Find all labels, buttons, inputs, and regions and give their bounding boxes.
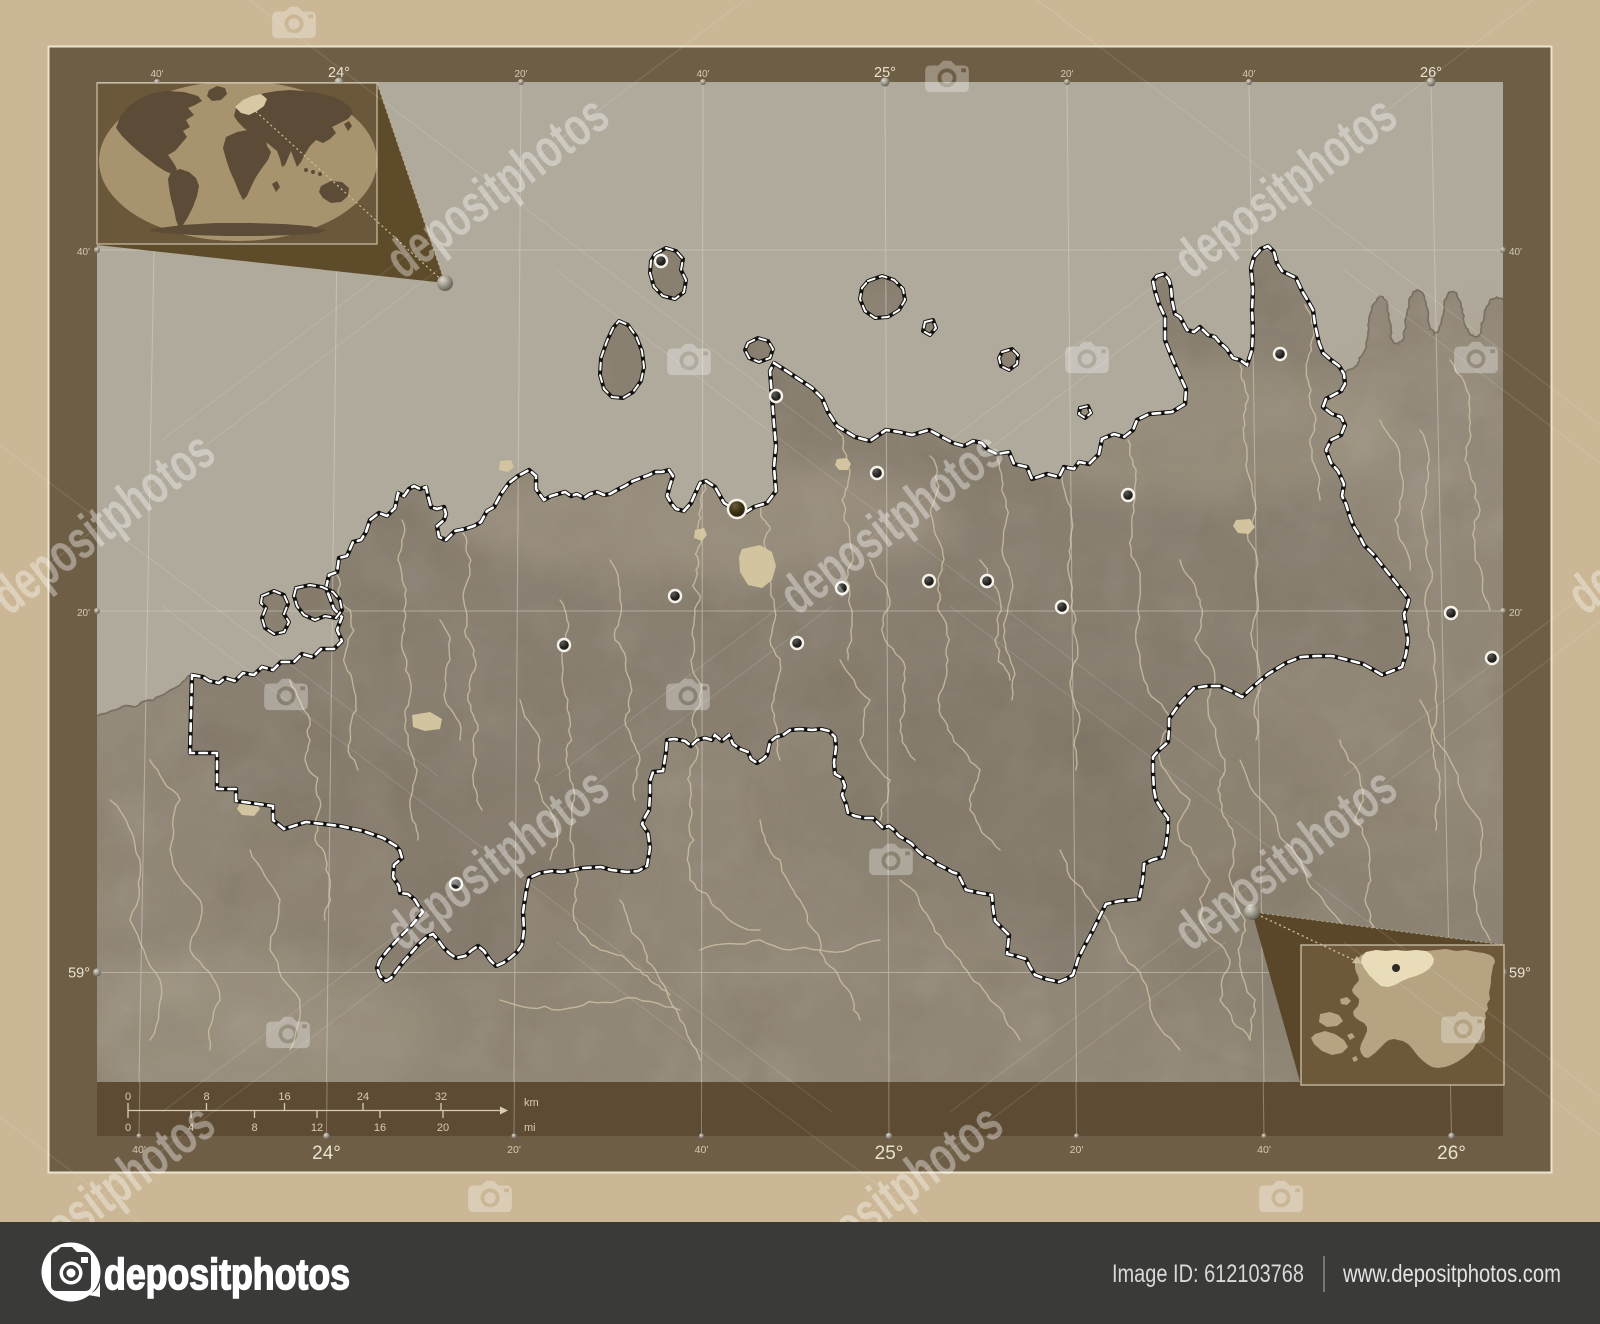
svg-text:Image ID: 612103768: Image ID: 612103768 — [1112, 1260, 1304, 1288]
svg-text:24°: 24° — [312, 1143, 341, 1164]
svg-text:20': 20' — [1509, 608, 1522, 619]
svg-text:12: 12 — [311, 1122, 323, 1134]
svg-text:20': 20' — [77, 608, 90, 619]
svg-text:16: 16 — [278, 1091, 290, 1103]
svg-text:26°: 26° — [1420, 65, 1442, 81]
svg-text:32: 32 — [435, 1091, 447, 1103]
svg-text:24: 24 — [357, 1091, 369, 1103]
svg-text:40': 40' — [695, 1144, 709, 1156]
svg-text:40': 40' — [1242, 69, 1255, 80]
svg-text:20': 20' — [1070, 1144, 1084, 1156]
svg-text:20': 20' — [1060, 69, 1073, 80]
svg-text:8: 8 — [251, 1122, 257, 1134]
svg-text:0: 0 — [125, 1122, 131, 1134]
svg-text:40': 40' — [150, 69, 163, 80]
svg-text:0: 0 — [125, 1091, 131, 1103]
svg-text:40': 40' — [77, 247, 90, 258]
svg-text:40': 40' — [1509, 247, 1522, 258]
svg-text:40': 40' — [696, 69, 709, 80]
svg-text:8: 8 — [203, 1091, 209, 1103]
svg-text:40': 40' — [1257, 1144, 1271, 1156]
svg-text:20: 20 — [437, 1122, 449, 1134]
svg-text:www.depositphotos.com: www.depositphotos.com — [1342, 1260, 1561, 1288]
svg-text:25°: 25° — [874, 65, 896, 81]
svg-text:59°: 59° — [1509, 966, 1531, 982]
svg-text:20': 20' — [514, 69, 527, 80]
svg-text:16: 16 — [374, 1122, 386, 1134]
svg-text:59°: 59° — [68, 966, 90, 982]
svg-text:26°: 26° — [1437, 1143, 1466, 1164]
svg-text:20': 20' — [507, 1144, 521, 1156]
svg-text:mi: mi — [524, 1122, 536, 1134]
svg-text:depositphotos: depositphotos — [104, 1250, 350, 1299]
svg-text:km: km — [524, 1097, 539, 1109]
